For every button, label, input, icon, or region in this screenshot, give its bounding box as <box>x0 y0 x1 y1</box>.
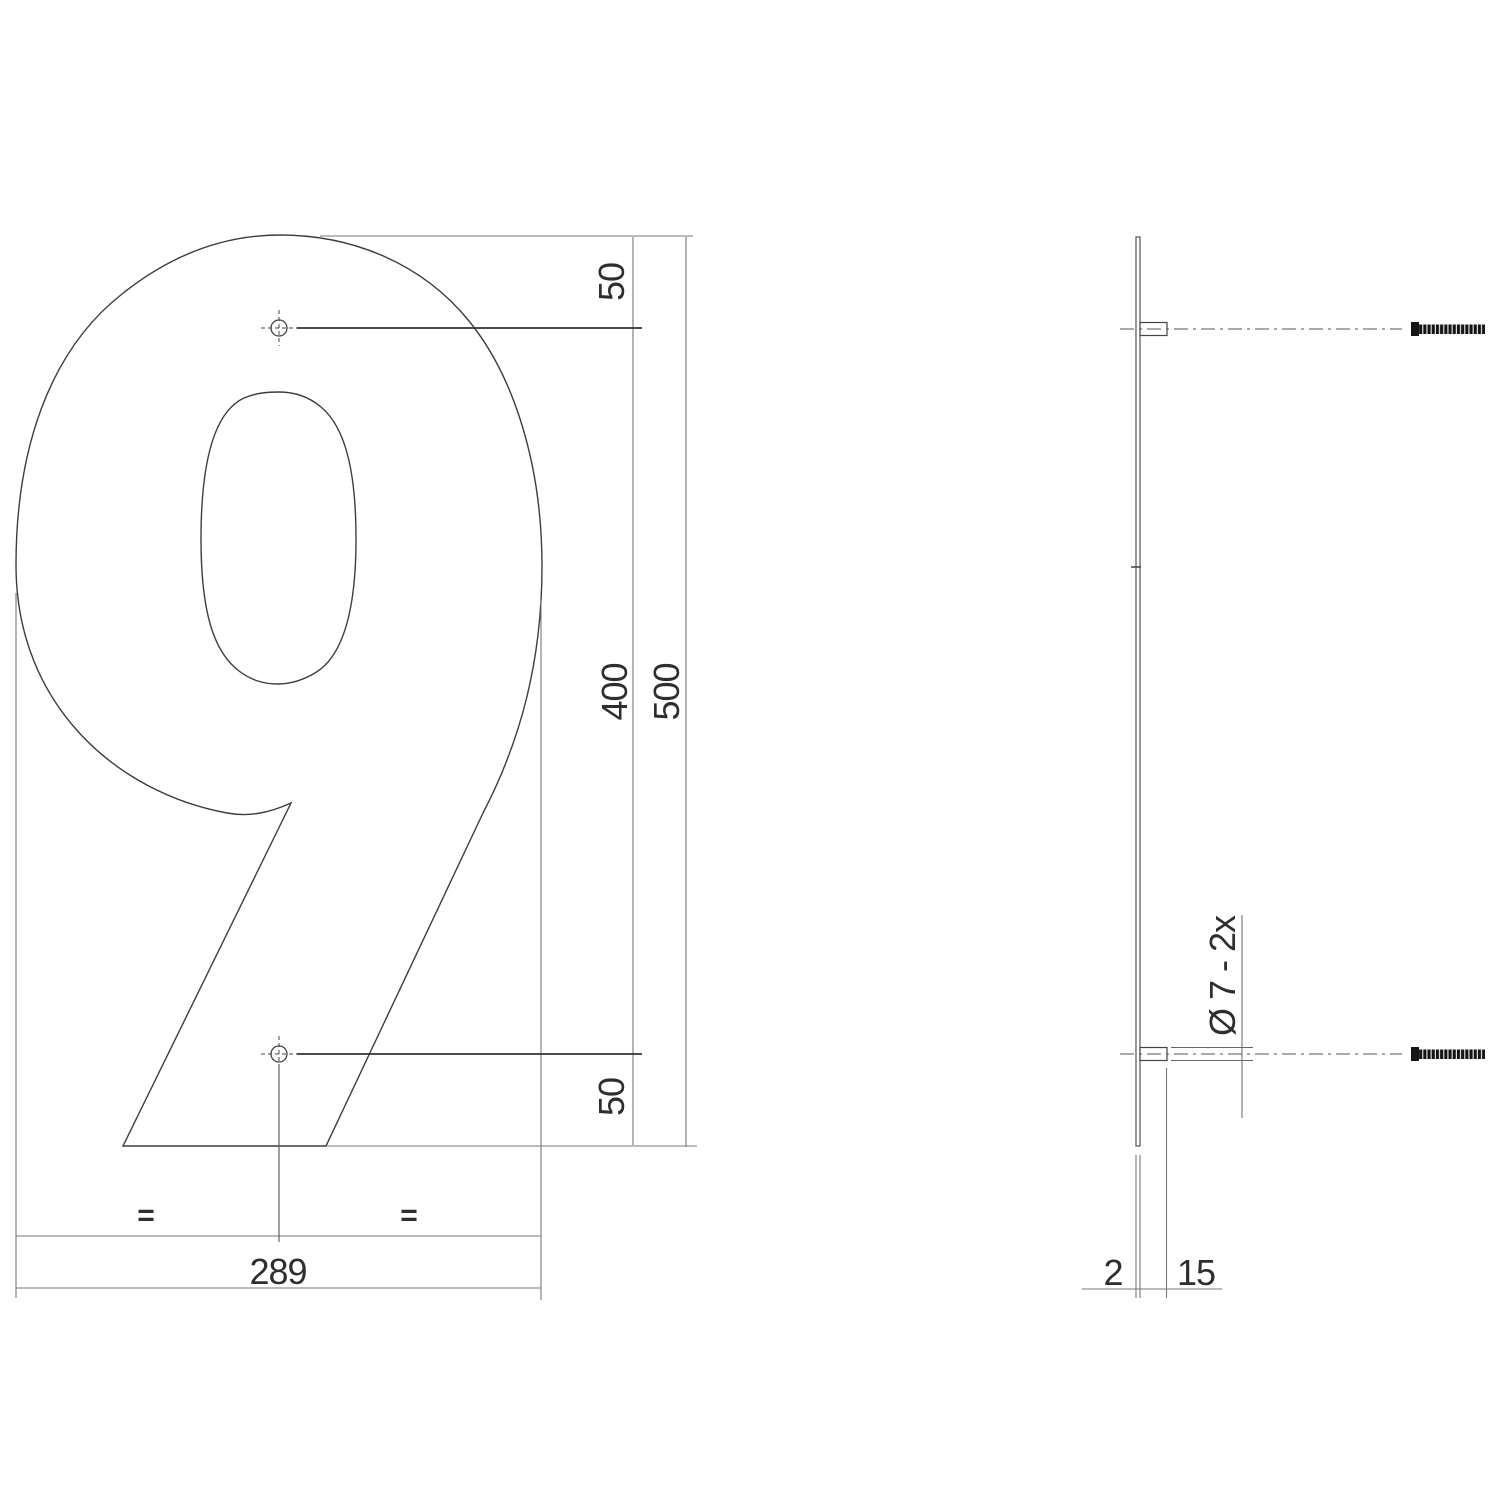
front-view <box>16 235 697 1300</box>
plate-profile <box>1136 237 1140 1146</box>
dim-label-thickness: 2 <box>1103 1255 1122 1291</box>
dim-label-hole-spacing: 400 <box>597 663 633 720</box>
dim-label-top-offset: 50 <box>594 263 630 301</box>
dim-label-width: 289 <box>249 1254 306 1290</box>
dim-label-equal-left: = <box>137 1201 155 1231</box>
technical-drawing-canvas: 50 400 500 50 = = 289 Ø 7 - 2x 2 15 <box>0 0 1500 1500</box>
dim-label-equal-right: = <box>400 1201 418 1231</box>
side-view <box>1082 237 1485 1298</box>
screw-top-icon <box>1411 322 1485 336</box>
dim-label-bottom-offset: 50 <box>594 1078 630 1116</box>
center-lines <box>1120 329 1402 1054</box>
dim-label-hole-note: Ø 7 - 2x <box>1205 916 1241 1036</box>
digit-9-outline <box>16 235 542 1146</box>
dim-label-total-height: 500 <box>649 663 685 720</box>
drawing-linework <box>0 0 1500 1500</box>
dim-label-stud-length: 15 <box>1177 1255 1215 1291</box>
screw-bottom-icon <box>1411 1047 1485 1061</box>
